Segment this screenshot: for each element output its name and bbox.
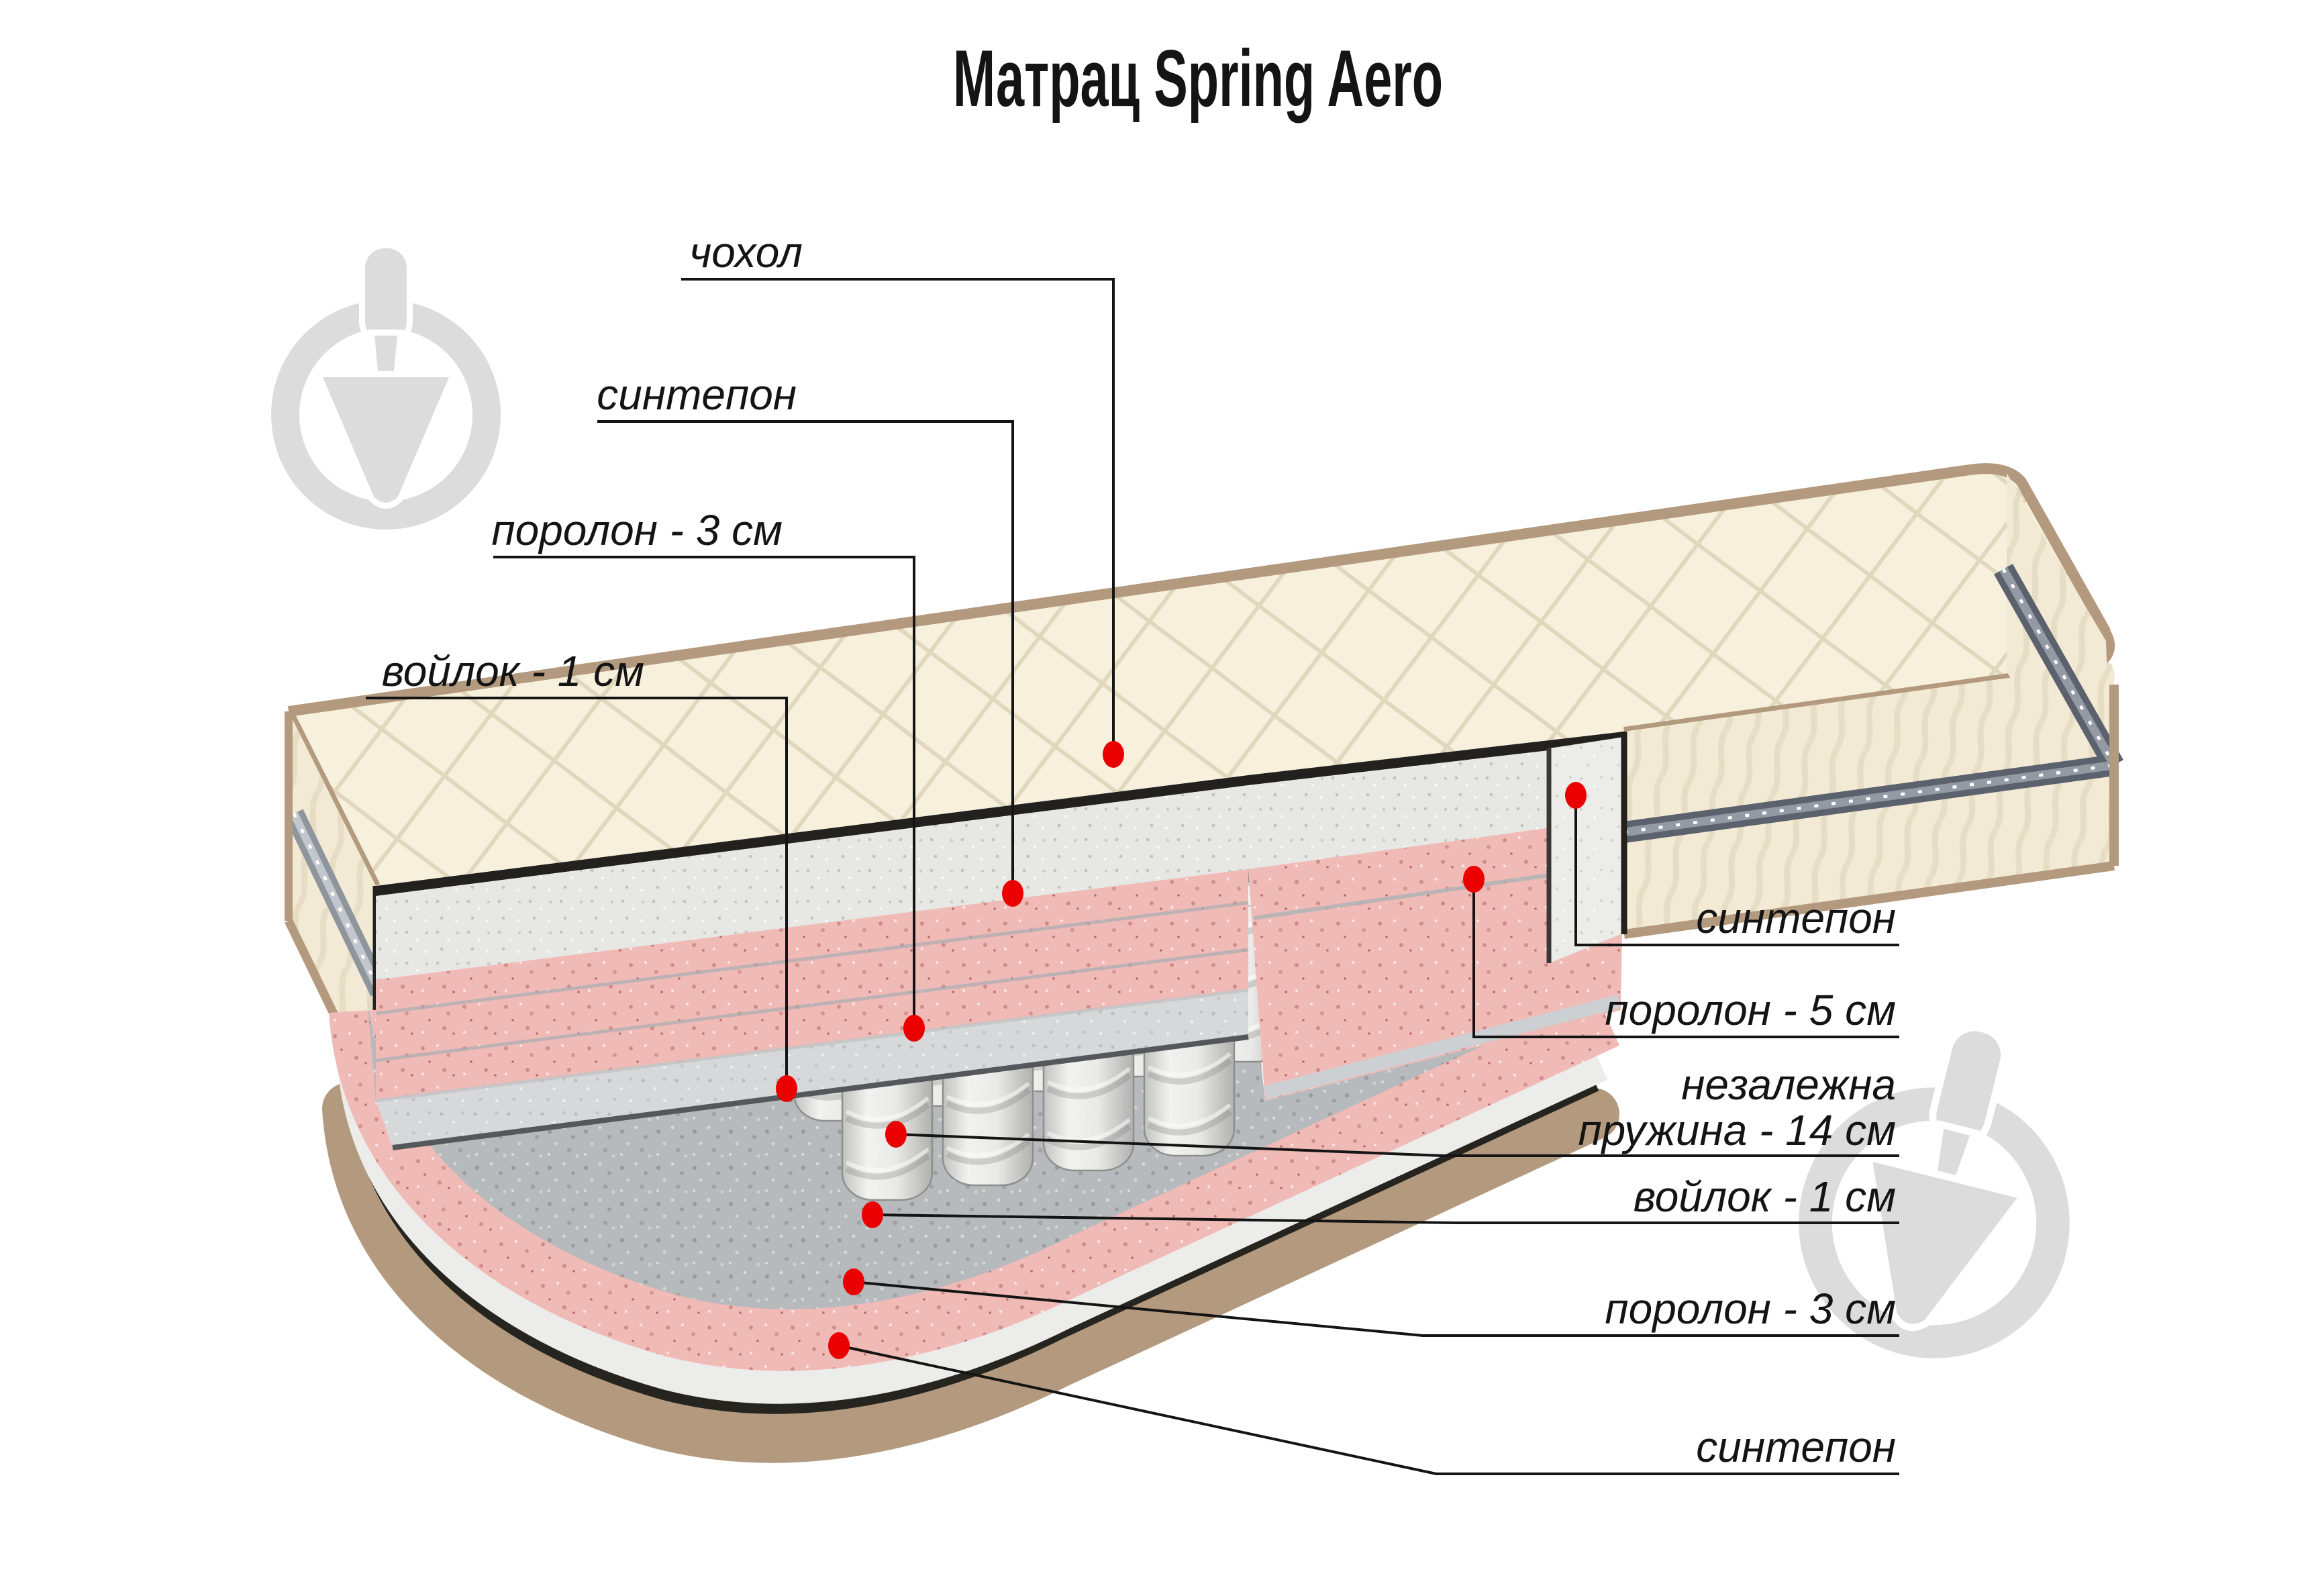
label-sintepon-bottom: синтепон [1696, 1423, 1896, 1471]
label-foam-5cm-side: поролон - 5 см [1605, 986, 1896, 1034]
dot-foam-3cm-bottom [843, 1268, 864, 1295]
mattress-cutaway-diagram: Матрац Spring Aero чохол синтепон пороло… [0, 0, 2308, 1596]
label-felt-1cm-bottom: войлок - 1 см [1634, 1173, 1896, 1221]
dot-sintepon-side [1565, 782, 1587, 809]
label-cover: чохол [689, 228, 803, 277]
label-spring-line2: пружина - 14 см [1578, 1106, 1896, 1154]
label-sintepon-top: синтепон [597, 370, 797, 419]
dot-sintepon-top [1002, 880, 1023, 907]
label-foam-3cm-top: поролон - 3 см [491, 506, 783, 554]
dot-felt-1cm-bottom [862, 1201, 883, 1228]
dot-felt-1cm-top [776, 1075, 797, 1102]
label-foam-3cm-bottom: поролон - 3 см [1605, 1285, 1896, 1333]
label-sintepon-side: синтепон [1696, 894, 1896, 942]
label-felt-1cm-top: войлок - 1 см [382, 647, 644, 695]
dot-sintepon-bottom [828, 1332, 850, 1359]
dot-foam-3cm-top [903, 1015, 925, 1042]
label-spring-line1: незалежна [1681, 1060, 1896, 1109]
dot-spring [885, 1121, 907, 1148]
mattress-diagram-page: Матрац Spring Aero чохол синтепон пороло… [0, 0, 2308, 1596]
page-title: Матрац Spring Aero [953, 34, 1443, 123]
dot-foam-5cm-side [1463, 866, 1485, 893]
dot-cover [1103, 741, 1124, 768]
